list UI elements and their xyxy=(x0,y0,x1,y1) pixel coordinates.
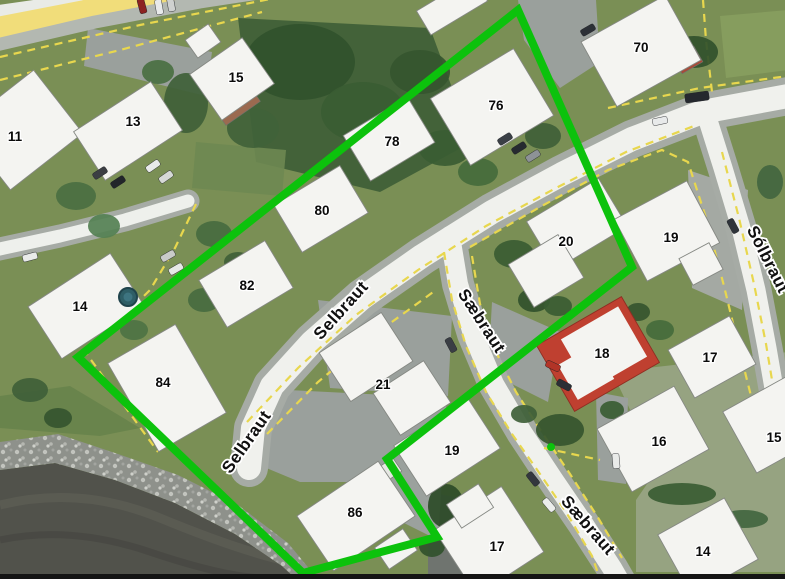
building-number-label: 17 xyxy=(489,539,504,554)
tree-canopy xyxy=(44,408,72,428)
building-number-label: 82 xyxy=(239,278,254,293)
building-number-label: 20 xyxy=(558,234,573,249)
building-number-label: 16 xyxy=(651,434,667,449)
building-number-label: 19 xyxy=(663,230,678,245)
building-number-label: 80 xyxy=(314,203,329,218)
tree-canopy xyxy=(511,405,537,423)
building-number-label: 14 xyxy=(72,299,88,314)
building-number-label: 86 xyxy=(347,505,363,520)
tree-canopy xyxy=(88,214,120,238)
tree-canopy xyxy=(56,182,96,210)
tree-canopy xyxy=(757,165,783,199)
building-number-label: 78 xyxy=(384,134,400,149)
building-number-label: 19 xyxy=(444,443,459,458)
vehicle xyxy=(612,453,620,469)
tree-canopy xyxy=(648,483,716,505)
garden-objects-layer xyxy=(119,288,137,306)
selected-parcel-point[interactable] xyxy=(547,443,555,451)
tree-canopy xyxy=(646,320,674,340)
aerial-map-view[interactable]: 1113151470767880828486212019181716151417… xyxy=(0,0,785,579)
building-number-label: 76 xyxy=(488,98,504,113)
tree-canopy xyxy=(12,378,48,402)
building-number-label: 15 xyxy=(228,70,244,85)
map-canvas[interactable]: 1113151470767880828486212019181716151417… xyxy=(0,0,785,579)
building-number-label: 17 xyxy=(702,350,717,365)
building-number-label: 11 xyxy=(8,129,23,144)
building-number-label: 18 xyxy=(594,346,610,361)
tree-canopy xyxy=(536,414,584,446)
image-edge-bar xyxy=(0,574,785,579)
building-number-label: 70 xyxy=(633,40,648,55)
light-lawn-topright xyxy=(720,10,785,78)
tree-canopy xyxy=(142,60,174,84)
building-number-label: 14 xyxy=(695,544,711,559)
building-number-label: 21 xyxy=(375,377,391,392)
trampoline-mat xyxy=(124,293,133,302)
building-number-label: 15 xyxy=(766,430,782,445)
garden-plots xyxy=(192,142,286,196)
building-number-label: 84 xyxy=(155,375,171,390)
tree-canopy xyxy=(458,158,498,186)
building-number-label: 13 xyxy=(125,114,141,129)
